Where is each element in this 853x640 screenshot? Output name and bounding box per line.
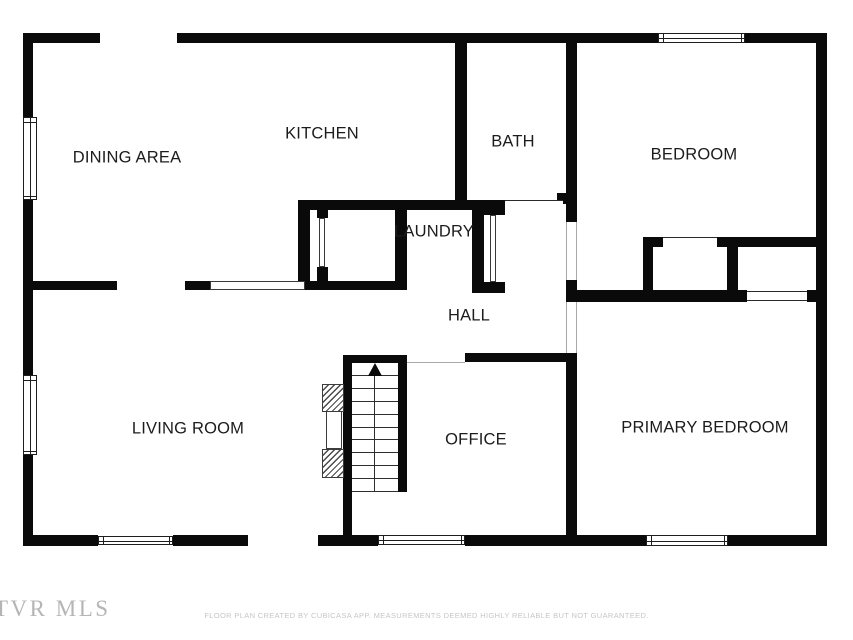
room-label-office: OFFICE — [445, 431, 507, 450]
window-midline — [379, 540, 464, 541]
stair-rail — [374, 371, 375, 492]
door-opening — [566, 302, 577, 353]
door-leaf — [210, 281, 305, 290]
room-label-dining-area: DINING AREA — [73, 149, 182, 168]
stair-tread — [352, 465, 398, 466]
stair-tread — [352, 478, 398, 479]
wall — [465, 353, 570, 362]
door-opening — [747, 291, 807, 301]
wall — [23, 33, 33, 117]
door-leaf — [319, 218, 325, 267]
stair-tread — [352, 427, 398, 428]
window-midline — [30, 376, 31, 454]
wall — [566, 353, 577, 535]
stair-tread — [352, 452, 398, 453]
wall — [727, 237, 738, 290]
window-midline — [99, 541, 172, 542]
wall — [745, 33, 827, 43]
floor-plan: TVR MLS FLOOR PLAN CREATED BY CUBICASA A… — [0, 0, 853, 640]
door-opening — [663, 237, 717, 247]
wall — [728, 535, 827, 546]
room-label-bedroom: BEDROOM — [651, 146, 738, 165]
window — [23, 117, 37, 200]
wall — [807, 290, 816, 302]
stair-tread — [352, 401, 398, 402]
wall — [318, 535, 378, 546]
chimney-hatch — [322, 384, 344, 412]
wall — [177, 33, 658, 43]
room-label-primary-bedroom: PRIMARY BEDROOM — [621, 419, 788, 438]
wall — [566, 43, 577, 222]
wall — [484, 203, 505, 215]
window-midline — [30, 118, 31, 199]
wall — [310, 281, 405, 290]
wall — [23, 33, 100, 43]
stairs-up-arrow-icon — [368, 363, 382, 376]
window-midline — [659, 38, 744, 39]
wall — [465, 535, 646, 546]
room-label-bath: BATH — [491, 133, 535, 152]
wall — [185, 281, 210, 290]
stair-tread — [352, 414, 398, 415]
wall — [173, 535, 248, 546]
chimney-hatch — [322, 449, 344, 478]
door-opening — [505, 200, 563, 210]
wall — [566, 280, 577, 302]
wall — [816, 33, 827, 546]
wall — [343, 355, 407, 363]
wall — [643, 237, 663, 247]
wall — [398, 363, 407, 492]
room-label-hall: HALL — [448, 307, 490, 326]
wall — [472, 282, 505, 293]
wall — [317, 267, 328, 281]
wall — [23, 535, 98, 546]
wall — [566, 290, 747, 302]
window — [378, 535, 465, 545]
window-midline — [647, 541, 727, 542]
window — [658, 33, 745, 43]
wall — [298, 200, 310, 290]
wall — [23, 281, 117, 290]
door-opening — [407, 354, 465, 363]
chimney-flue — [326, 411, 342, 449]
wall — [23, 455, 33, 546]
wall — [455, 43, 467, 208]
room-label-living-room: LIVING ROOM — [132, 420, 244, 439]
window — [23, 375, 37, 455]
door-opening — [566, 222, 577, 280]
wall — [317, 210, 328, 218]
room-label-laundry: LAUNDRY — [394, 223, 474, 242]
wall — [298, 200, 505, 210]
wall — [343, 355, 352, 535]
stair-tread — [352, 491, 398, 492]
door-leaf — [490, 215, 496, 282]
footer-disclaimer: FLOOR PLAN CREATED BY CUBICASA APP. MEAS… — [0, 611, 853, 620]
window — [646, 535, 728, 546]
stair-tread — [352, 388, 398, 389]
stair-tread — [352, 439, 398, 440]
window — [98, 536, 173, 545]
room-label-kitchen: KITCHEN — [285, 125, 359, 144]
wall — [643, 247, 653, 290]
